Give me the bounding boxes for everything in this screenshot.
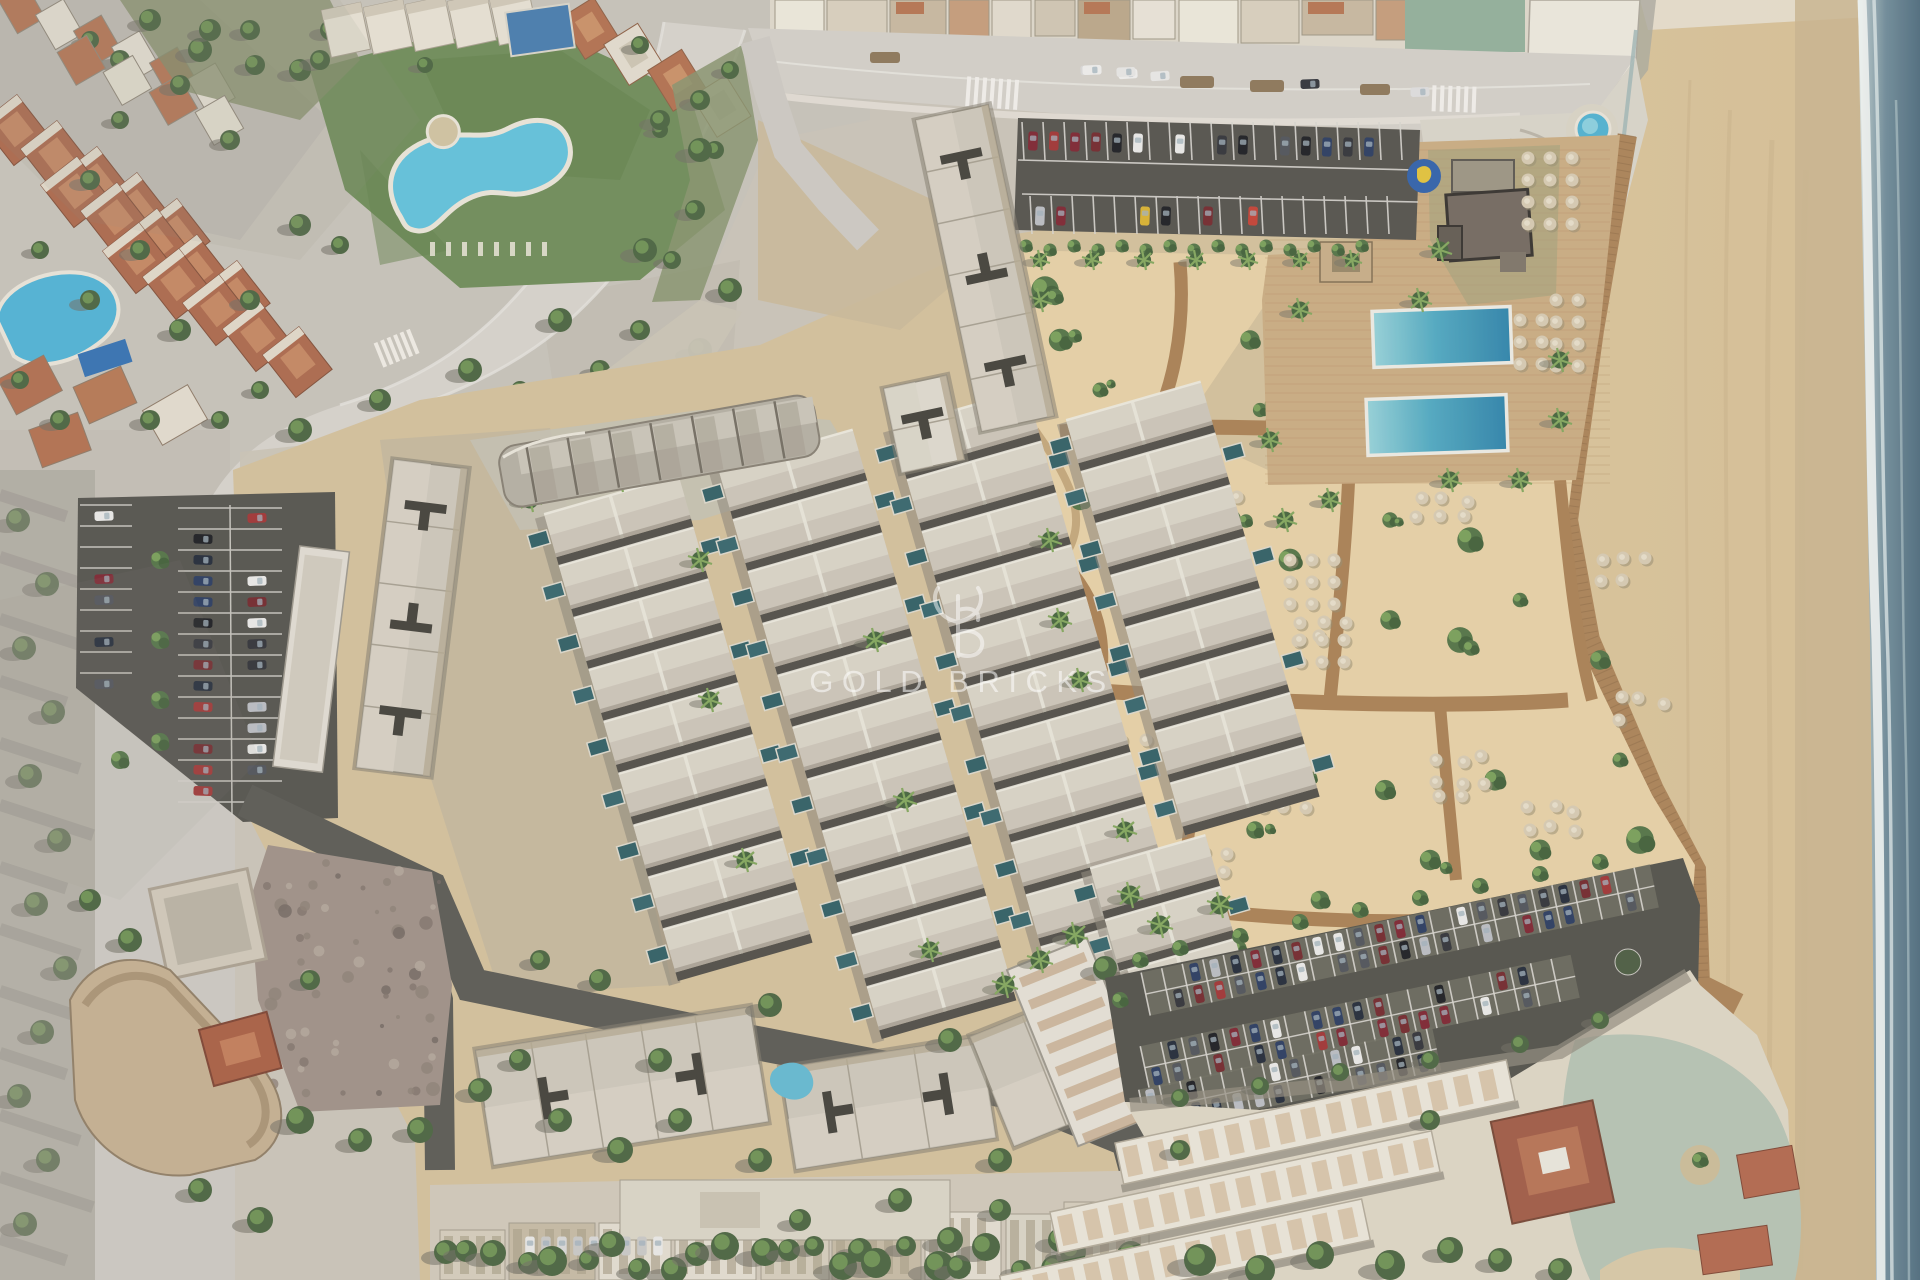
svg-text:GOLD BRICKS: GOLD BRICKS [809,664,1114,699]
